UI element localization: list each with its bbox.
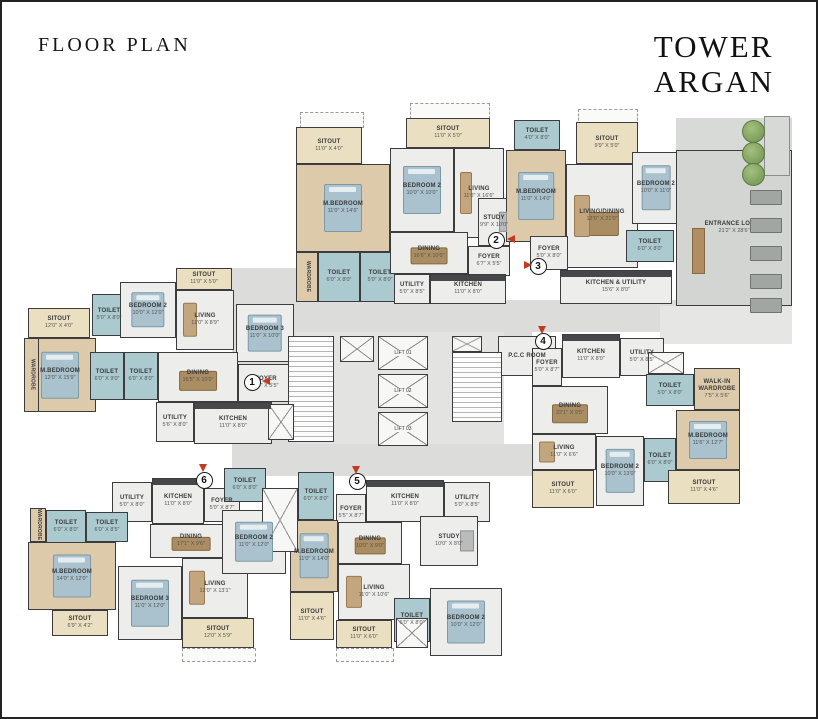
room-kitchen-utility: KITCHEN & UTILITY15'6" X 8'0" <box>560 270 672 304</box>
lobby-bench <box>750 274 782 289</box>
unit-marker-4: 4 <box>535 333 552 350</box>
room-dimensions: 5'6" X 8'0" <box>163 422 188 429</box>
room-toilet: TOILET4'0" X 8'0" <box>514 120 560 150</box>
room-dimensions: 6'0" X 8'0" <box>648 460 673 467</box>
room-dimensions: 11'0" X 14'6" <box>328 208 359 215</box>
room-name: SITOUT <box>47 316 70 323</box>
room-dimensions: 11'0" X 8'0" <box>454 289 482 296</box>
room-dimensions: 6'9" X 4'2" <box>68 623 93 630</box>
room-bedroom-2: BEDROOM 210'0" X 12'0" <box>120 282 176 338</box>
room-name: TOILET <box>234 478 256 485</box>
room-name: TOILET <box>401 613 423 620</box>
staircase-1 <box>288 336 334 442</box>
room-m-bedroom: M.BEDROOM14'0" X 12'0" <box>28 542 116 610</box>
room-dimensions: 5'0" X 8'0" <box>368 277 393 284</box>
room-dimensions: 11'0" X 6'0" <box>549 489 577 496</box>
room-name: M.BEDROOM <box>516 189 556 196</box>
room-dining: DINING22'1" X 9'5" <box>532 386 608 434</box>
room-name: BEDROOM 2 <box>403 183 441 190</box>
room-name: M.BEDROOM <box>688 433 728 440</box>
room-name: UTILITY <box>630 350 654 357</box>
room-dining: DINING10'0" X 9'0" <box>338 522 402 564</box>
tree-icon <box>742 142 765 165</box>
room-dimensions: 6'0" X 8'0" <box>304 496 329 503</box>
room-dimensions: 11'0" X 16'6" <box>464 193 495 200</box>
room-name: SITOUT <box>551 482 574 489</box>
room-dimensions: 14'0" X 12'0" <box>56 576 87 583</box>
floor-plan-canvas: SITOUT11'0" X 4'0"M.BEDROOM11'0" X 14'6"… <box>0 0 818 719</box>
room-dimensions: 10'0" X 12'0" <box>132 310 163 317</box>
room-dimensions: 15'6" X 8'0" <box>602 287 630 294</box>
room-dimensions: 11'0" X 6'6" <box>550 452 578 459</box>
room-dimensions: 16'6" X 10'0" <box>413 253 444 260</box>
lift-label: LIFT 01 <box>393 350 412 356</box>
tower-name-line2: ARGAN <box>654 65 774 100</box>
room-name: M.BEDROOM <box>294 549 334 556</box>
room-name: SITOUT <box>317 139 340 146</box>
room-dimensions: 6'0" X 8'5" <box>95 527 120 534</box>
room-sitout: SITOUT9'9" X 5'0" <box>576 122 638 164</box>
room-name: LIVING <box>468 186 489 193</box>
room-dimensions: 16'5" X 10'0" <box>182 377 213 384</box>
room-dining: DINING16'6" X 10'0" <box>390 232 468 274</box>
room-dimensions: 12'0" X 21'0" <box>586 216 617 223</box>
room-name: WARDROBE <box>29 359 35 390</box>
room-dimensions: 10'0" X 10'0" <box>406 190 437 197</box>
room-dimensions: 11'0" X 6'0" <box>350 634 378 641</box>
room-name: BEDROOM 3 <box>131 596 169 603</box>
room-toilet: TOILET6'0" X 8'0" <box>224 468 266 502</box>
room-dimensions: 10'0" X 9'0" <box>356 543 384 550</box>
room-kitchen: KITCHEN11'0" X 8'0" <box>562 334 620 378</box>
projection-outline <box>182 648 256 662</box>
projection-outline <box>336 648 394 662</box>
room-utility: UTILITY5'6" X 8'0" <box>156 402 194 442</box>
room-name: DINING <box>180 534 202 541</box>
room-dimensions: 6'0" X 9'0" <box>95 376 120 383</box>
room-dimensions: 11'0" X 14'0" <box>299 556 330 563</box>
room-name: BEDROOM 2 <box>601 464 639 471</box>
room-wardrobe: WARDROBE <box>30 508 46 542</box>
room-dimensions: 21'2" X 28'6" <box>718 228 749 235</box>
room-name: KITCHEN & UTILITY <box>586 280 646 287</box>
room-name: SITOUT <box>352 627 375 634</box>
corridor <box>232 300 680 332</box>
room-name: BEDROOM 2 <box>637 181 675 188</box>
corridor <box>232 444 532 476</box>
room-name: BEDROOM 3 <box>246 326 284 333</box>
room-dimensions: 6'0" X 8'0" <box>638 246 663 253</box>
room-dimensions: 11'0" X 10'0" <box>250 333 281 340</box>
entry-arrow-icon <box>538 326 546 334</box>
room-dimensions: 11'0" X 5'0" <box>434 133 462 140</box>
room-dimensions: 22'1" X 9'5" <box>556 410 584 417</box>
room-dimensions: 12'0" X 5'9" <box>204 633 232 640</box>
room-dimensions: 6'7" X 5'5" <box>477 261 502 268</box>
page-title: FLOOR PLAN <box>38 34 191 57</box>
room-name: WARDROBE <box>35 509 41 540</box>
room-sitout: SITOUT11'0" X 6'0" <box>336 620 392 648</box>
room-name: TOILET <box>369 270 391 277</box>
room-dimensions: 6'0" X 8'0" <box>54 527 79 534</box>
room-dimensions: 6'0" X 8'0" <box>400 620 425 627</box>
room-name: TOILET <box>649 453 671 460</box>
kitchen-counter-icon <box>367 481 443 487</box>
room-utility: UTILITY5'0" X 8'5" <box>394 274 430 304</box>
room-sitout: SITOUT12'0" X 4'0" <box>28 308 90 338</box>
reception-desk <box>692 228 705 274</box>
duct-shaft <box>452 336 482 352</box>
room-dimensions: 9'9" X 10'0" <box>480 222 508 229</box>
room-dimensions: 11'0" X 12'0" <box>135 603 166 610</box>
lift-shaft-2: LIFT 02 <box>378 374 428 408</box>
room-name: TOILET <box>55 520 77 527</box>
room-toilet: TOILET6'0" X 8'0" <box>46 510 86 544</box>
tower-name: TOWER ARGAN <box>654 30 774 99</box>
room-dimensions: 10'0" X 13'0" <box>604 471 635 478</box>
room-dimensions: 11'0" X 4'6" <box>690 487 718 494</box>
room-m-bedroom: M.BEDROOM11'0" X 14'0" <box>506 150 566 242</box>
room-sitout: SITOUT11'0" X 5'0" <box>176 268 232 290</box>
unit-marker-3: 3 <box>530 258 547 275</box>
room-name: DINING <box>359 536 381 543</box>
room-dimensions: 11'0" X 4'0" <box>315 146 343 153</box>
room-dimensions: 10'0" X 8'0" <box>435 541 463 548</box>
room-sitout: SITOUT11'0" X 4'6" <box>290 592 334 640</box>
kitchen-counter-icon <box>431 275 505 281</box>
room-sitout: SITOUT12'0" X 5'9" <box>182 618 254 648</box>
room-living: LIVING11'0" X 6'6" <box>532 434 596 470</box>
room-dimensions: 12'0" X 13'1" <box>199 588 230 595</box>
lobby-bench <box>750 190 782 205</box>
room-name: DINING <box>187 370 209 377</box>
planter-box <box>764 116 790 176</box>
room-name: KITCHEN <box>577 349 605 356</box>
room-name: UTILITY <box>163 415 187 422</box>
room-name: FOYER <box>538 246 560 253</box>
room-dimensions: 6'0" X 8'0" <box>233 485 258 492</box>
room-dimensions: 4'0" X 8'0" <box>525 135 550 142</box>
room-dimensions: 5'0" X 8'7" <box>210 505 235 512</box>
room-dimensions: 11'0" X 8'9" <box>191 320 219 327</box>
room-kitchen: KITCHEN11'0" X 8'0" <box>152 478 204 524</box>
kitchen-counter-icon <box>195 403 271 409</box>
room-dimensions: 11'0" X 5'0" <box>190 279 218 286</box>
floor-plan-page: FLOOR PLAN TOWER ARGAN SITOUT11'0" X 4'0… <box>0 0 818 719</box>
room-sitout: SITOUT11'0" X 4'0" <box>296 127 362 164</box>
room-toilet: TOILET6'0" X 8'0" <box>626 230 674 262</box>
room-sitout: SITOUT6'9" X 4'2" <box>52 610 108 636</box>
room-sitout: SITOUT11'0" X 4'6" <box>668 470 740 504</box>
room-kitchen: KITCHEN11'0" X 8'0" <box>430 274 506 304</box>
room-name: LIVING <box>553 445 574 452</box>
room-dimensions: 10'0" X 12'0" <box>450 622 481 629</box>
room-dimensions: 5'5" X 8'7" <box>339 513 364 520</box>
room-name: STUDY <box>438 534 459 541</box>
room-dimensions: 5'0" X 8'5" <box>455 502 480 509</box>
entry-arrow-icon <box>524 261 532 269</box>
room-name: BEDROOM 2 <box>129 303 167 310</box>
room-name: UTILITY <box>120 495 144 502</box>
room-dimensions: 6'0" X 8'0" <box>327 277 352 284</box>
room-living: LIVING11'0" X 8'9" <box>176 290 234 350</box>
room-dimensions: 12'0" X 4'0" <box>45 323 73 330</box>
room-name: DINING <box>418 246 440 253</box>
room-bedroom-3: BEDROOM 311'0" X 12'0" <box>118 566 182 640</box>
room-name: TOILET <box>96 520 118 527</box>
room-bedroom-2: BEDROOM 210'0" X 11'0" <box>632 152 680 224</box>
room-dimensions: 5'0" X 8'5" <box>630 357 655 364</box>
room-dimensions: 11'0" X 8'0" <box>577 356 605 363</box>
duct-shaft <box>268 404 294 440</box>
room-toilet: TOILET6'0" X 8'0" <box>318 252 360 302</box>
room-name: TOILET <box>639 239 661 246</box>
room-dimensions: 9'9" X 5'0" <box>595 143 620 150</box>
room-wardrobe: WARDROBE <box>296 252 318 302</box>
room-name: BEDROOM 2 <box>235 535 273 542</box>
duct-shaft <box>340 336 374 362</box>
room-walk-in-wardrobe: WALK-IN WARDROBE7'5" X 5'6" <box>694 368 740 410</box>
room-name: M.BEDROOM <box>323 201 363 208</box>
room-name: TOILET <box>98 308 120 315</box>
room-dimensions: 5'0" X 8'0" <box>97 315 122 322</box>
room-name: KITCHEN <box>164 494 192 501</box>
lobby-bench <box>750 218 782 233</box>
kitchen-counter-icon <box>561 271 671 277</box>
lobby-bench <box>750 246 782 261</box>
entry-arrow-icon <box>262 377 270 385</box>
lift-label: LIFT 02 <box>393 388 412 394</box>
room-name: WARDROBE <box>304 261 310 292</box>
room-dimensions: 11'0" X 12'0" <box>239 542 270 549</box>
room-dimensions: 5'0" X 8'5" <box>400 289 425 296</box>
room-name: SITOUT <box>192 272 215 279</box>
room-wardrobe: WARDROBE <box>24 338 39 412</box>
room-name: M.BEDROOM <box>52 569 92 576</box>
room-name: KITCHEN <box>219 416 247 423</box>
room-toilet: TOILET6'0" X 8'5" <box>86 512 128 542</box>
unit-marker-1: 1 <box>244 374 261 391</box>
room-name: TOILET <box>659 383 681 390</box>
room-dining: DINING16'5" X 10'0" <box>158 352 238 402</box>
lift-shaft-3: LIFT 03 <box>378 412 428 446</box>
room-name: STUDY <box>483 215 504 222</box>
room-name: FOYER <box>211 498 233 505</box>
room-dimensions: 11'0" X 14'0" <box>521 196 552 203</box>
projection-outline <box>410 103 490 119</box>
room-dimensions: 11'6" X 12'7" <box>693 440 724 447</box>
room-bedroom-2: BEDROOM 210'0" X 12'0" <box>430 588 502 656</box>
room-dimensions: 11'0" X 8'0" <box>391 501 419 508</box>
room-name: TOILET <box>305 489 327 496</box>
tree-icon <box>742 120 765 143</box>
room-name: SITOUT <box>595 136 618 143</box>
room-m-bedroom: M.BEDROOM11'6" X 12'7" <box>676 410 740 470</box>
room-sitout: SITOUT11'0" X 6'0" <box>532 470 594 508</box>
entry-arrow-icon <box>507 235 515 243</box>
room-sitout: SITOUT11'0" X 5'0" <box>406 118 490 148</box>
kitchen-counter-icon <box>563 335 619 341</box>
room-dimensions: 11'0" X 4'6" <box>298 616 326 623</box>
entry-arrow-icon <box>352 466 360 474</box>
tower-name-line1: TOWER <box>654 30 774 65</box>
lift-label: LIFT 03 <box>393 426 412 432</box>
unit-marker-6: 6 <box>196 472 213 489</box>
room-name: KITCHEN <box>391 494 419 501</box>
room-name: KITCHEN <box>454 282 482 289</box>
tree-icon <box>742 163 765 186</box>
projection-outline <box>300 112 364 128</box>
room-dimensions: 11'0" X 8'0" <box>219 423 247 430</box>
unit-marker-2: 2 <box>488 232 505 249</box>
room-toilet: TOILET6'0" X 9'0" <box>90 352 124 400</box>
room-name: TOILET <box>526 128 548 135</box>
room-name: LIVING <box>194 313 215 320</box>
room-name: UTILITY <box>400 282 424 289</box>
room-dimensions: 17'1" X 9'6" <box>177 541 205 548</box>
room-name: TOILET <box>96 369 118 376</box>
entry-arrow-icon <box>199 464 207 472</box>
room-name: LIVING <box>204 581 225 588</box>
room-dimensions: 12'0" X 15'9" <box>44 375 75 382</box>
room-name: FOYER <box>340 506 362 513</box>
room-name: P.C.C ROOM <box>508 353 546 360</box>
lift-shaft-1: LIFT 01 <box>378 336 428 370</box>
room-name: SITOUT <box>300 609 323 616</box>
lobby-bench <box>750 298 782 313</box>
room-dimensions: 5'0" X 8'7" <box>535 367 560 374</box>
room-name: TOILET <box>130 369 152 376</box>
room-dimensions: 7'5" X 5'6" <box>705 393 730 400</box>
room-name: WALK-IN WARDROBE <box>695 379 739 393</box>
room-dimensions: 6'0" X 8'0" <box>129 376 154 383</box>
staircase-2 <box>452 352 502 422</box>
room-study: STUDY10'0" X 8'0" <box>420 516 478 566</box>
room-dimensions: 5'0" X 8'0" <box>120 502 145 509</box>
room-foyer: FOYER6'7" X 5'5" <box>468 246 510 276</box>
room-kitchen: KITCHEN11'0" X 8'0" <box>194 402 272 444</box>
room-name: FOYER <box>536 360 558 367</box>
room-name: LIVING/DINING <box>579 209 624 216</box>
room-name: DINING <box>559 403 581 410</box>
room-toilet: TOILET6'0" X 8'0" <box>298 472 334 520</box>
unit-marker-5: 5 <box>349 473 366 490</box>
room-bedroom-3: BEDROOM 311'0" X 10'0" <box>236 304 294 362</box>
room-dining: DINING17'1" X 9'6" <box>150 524 232 558</box>
room-name: SITOUT <box>206 626 229 633</box>
room-name: UTILITY <box>455 495 479 502</box>
room-dimensions: 11'0" X 8'0" <box>164 501 192 508</box>
room-toilet: TOILET6'0" X 8'0" <box>124 352 158 400</box>
room-m-bedroom: M.BEDROOM11'0" X 14'6" <box>296 164 390 252</box>
room-name: SITOUT <box>692 480 715 487</box>
room-name: TOILET <box>328 270 350 277</box>
room-name: M.BEDROOM <box>40 368 80 375</box>
room-name: FOYER <box>478 254 500 261</box>
room-name: LIVING <box>363 585 384 592</box>
room-dimensions: 5'0" X 8'0" <box>658 390 683 397</box>
room-bedroom-2: BEDROOM 210'0" X 13'0" <box>596 436 644 506</box>
room-bedroom-2: BEDROOM 210'0" X 10'0" <box>390 148 454 232</box>
room-name: SITOUT <box>436 126 459 133</box>
room-dimensions: 11'0" X 10'6" <box>359 592 390 599</box>
room-dimensions: 10'0" X 11'0" <box>641 188 672 195</box>
room-name: BEDROOM 2 <box>447 615 485 622</box>
room-toilet: TOILET5'0" X 8'0" <box>646 374 694 406</box>
room-name: SITOUT <box>68 616 91 623</box>
